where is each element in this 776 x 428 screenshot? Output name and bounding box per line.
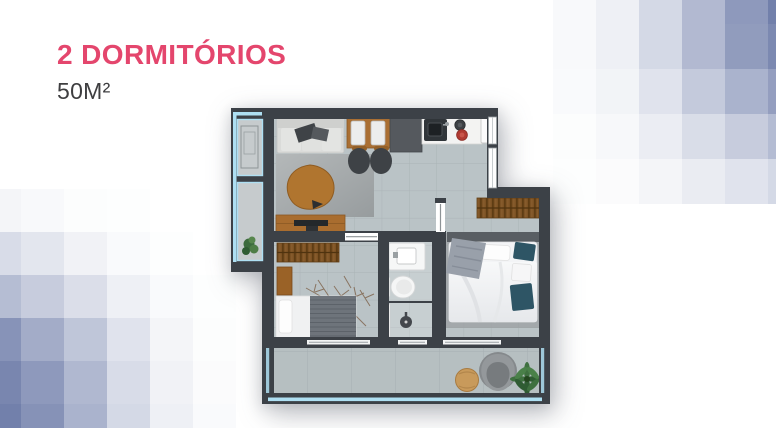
coffee-table xyxy=(287,165,334,209)
white-cushion xyxy=(511,263,531,281)
single-bed xyxy=(276,296,356,338)
dining-chair-dark-2 xyxy=(370,148,392,174)
top-wall xyxy=(262,108,498,119)
kitchen-sink xyxy=(424,119,449,141)
strip-glass-top xyxy=(233,112,262,116)
interior-door-bedroom2 xyxy=(345,233,378,241)
tv-stand xyxy=(276,215,345,232)
bathroom-right-wall xyxy=(432,231,446,348)
balcony-pouf xyxy=(456,369,479,392)
sofa xyxy=(277,119,344,153)
bathroom-left-wall xyxy=(378,231,389,348)
dining-chair-white-1 xyxy=(351,121,365,145)
strip-divider xyxy=(237,176,263,182)
teal-pillow-1 xyxy=(513,242,536,262)
teal-pillow-2 xyxy=(510,283,535,311)
pillow-2 xyxy=(482,244,511,260)
floor-plan xyxy=(0,0,776,428)
bedroom1-door-stub xyxy=(435,198,446,203)
bathroom-sink xyxy=(389,243,425,270)
slide: 2 DORMITÓRIOS 50M² xyxy=(0,0,776,428)
right-wall xyxy=(539,187,550,404)
faucet xyxy=(393,252,398,258)
pillow xyxy=(279,300,292,333)
shower-partition xyxy=(389,301,432,303)
balcony-sliding-doors xyxy=(307,340,501,345)
nightstand-bedroom2 xyxy=(277,267,292,295)
wardrobe-bedroom1 xyxy=(477,198,539,218)
apartment-floor-plan xyxy=(0,0,776,428)
dining-chair-dark-1 xyxy=(348,148,370,174)
kitchen-cabinet xyxy=(390,118,422,152)
tv xyxy=(294,220,328,226)
dining-chair-white-2 xyxy=(371,121,385,145)
double-bed xyxy=(446,232,539,322)
wardrobe-bedroom2 xyxy=(277,243,339,262)
strip-glass-left xyxy=(233,112,237,262)
interior-door-bedroom1 xyxy=(436,203,445,232)
window-right-wall xyxy=(489,117,497,188)
